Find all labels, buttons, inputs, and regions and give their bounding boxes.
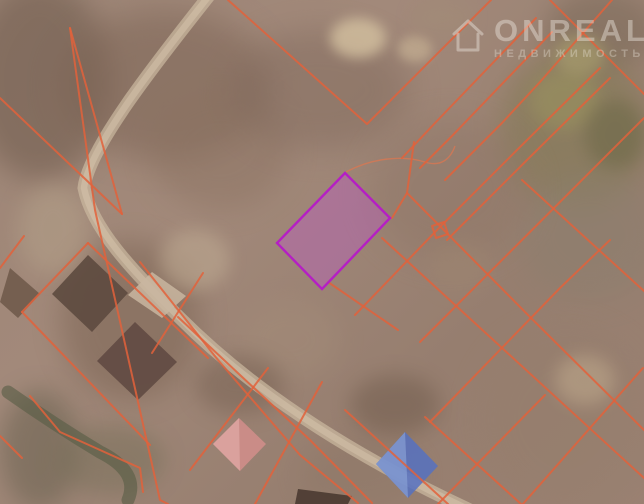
map-canvas[interactable]: ONREALT НЕДВИЖИМОСТЬ (0, 0, 644, 504)
parcel-boundary (438, 395, 545, 504)
parcel-boundary (447, 78, 610, 240)
dark-roof-house (52, 255, 128, 332)
parcel-boundary (0, 436, 22, 458)
parcel-boundary (522, 180, 644, 291)
parcel-boundary (382, 238, 644, 478)
parcel-boundary (402, 18, 536, 158)
parcel-boundary (420, 118, 644, 342)
stream (8, 392, 131, 500)
parcel-boundary (355, 68, 600, 315)
parcel-boundary (0, 98, 122, 214)
cadastral-overlay (0, 0, 644, 504)
parcel-boundary (392, 142, 414, 218)
parcel-boundary (432, 222, 448, 238)
pink-roof-house-shade (213, 418, 240, 471)
highlighted-parcel[interactable] (277, 173, 390, 289)
parcel-boundary (178, 317, 372, 503)
parcel-boundary (522, 368, 643, 504)
parcel-boundary (407, 193, 644, 430)
parcel-boundary (328, 282, 398, 330)
parcel-boundary (430, 240, 610, 422)
parcel-boundary (550, 0, 644, 94)
dark-roof-house (0, 268, 40, 318)
parcel-boundary (0, 236, 24, 268)
